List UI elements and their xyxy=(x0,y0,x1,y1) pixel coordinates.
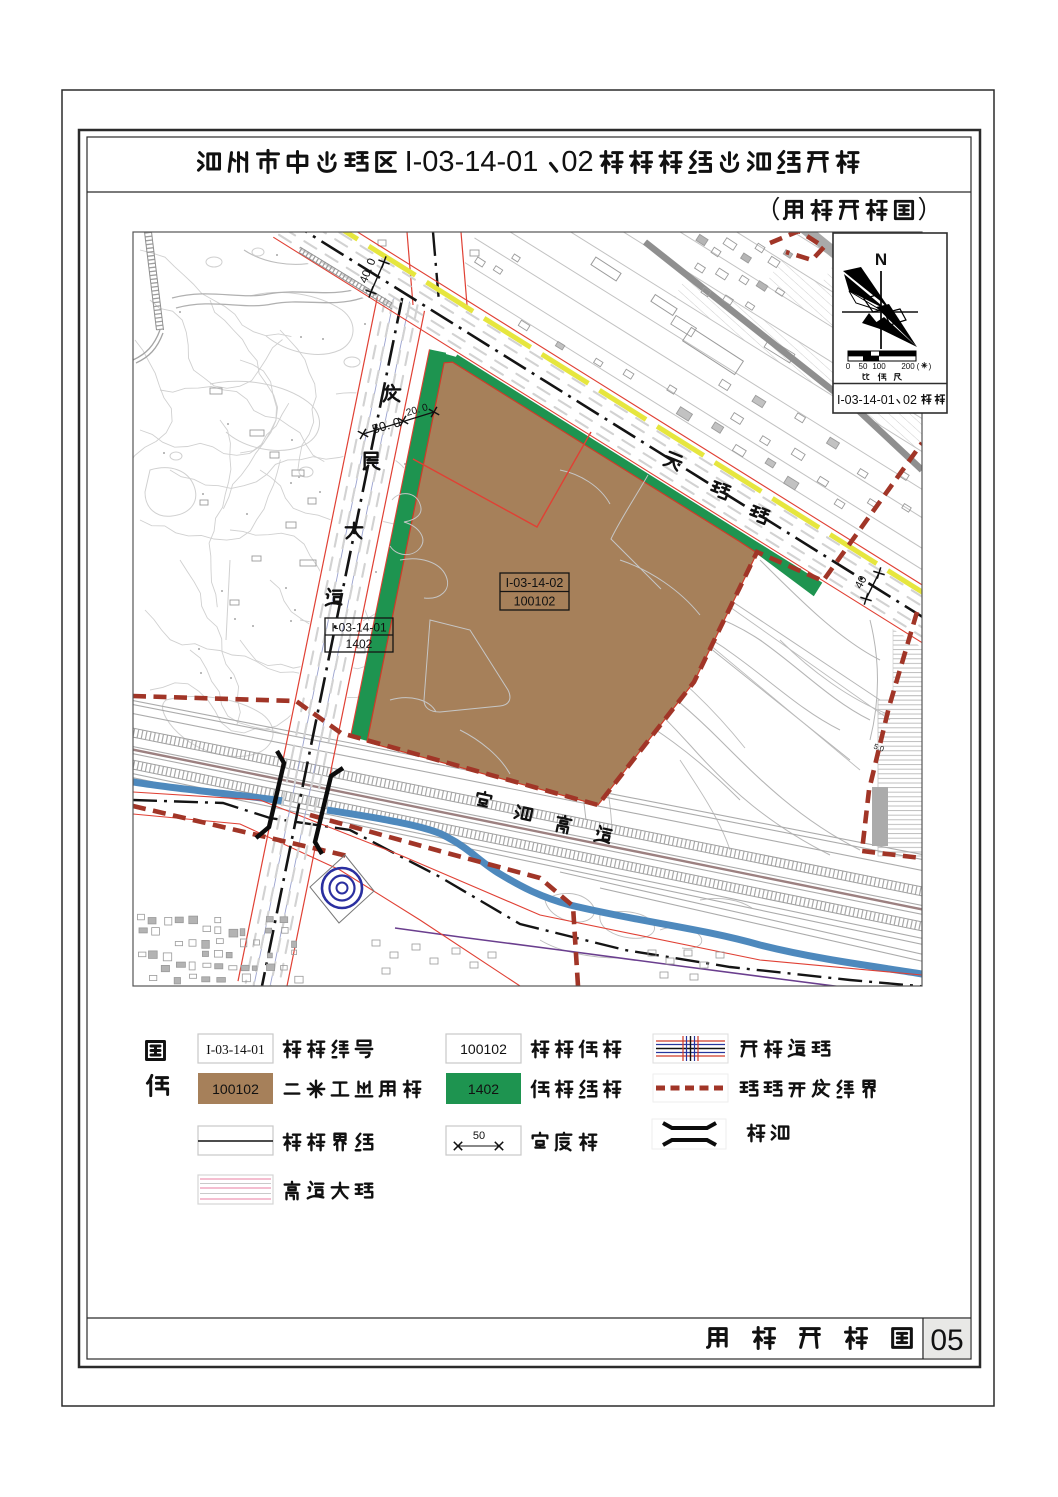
svg-text:I-03-14-01: I-03-14-01 xyxy=(331,621,387,635)
svg-text:（: （ xyxy=(755,196,780,224)
svg-text:100: 100 xyxy=(872,362,886,371)
svg-text:N: N xyxy=(875,250,887,269)
svg-text:02: 02 xyxy=(561,146,593,178)
svg-text:02: 02 xyxy=(903,393,917,407)
svg-text:I-03-14-02: I-03-14-02 xyxy=(506,576,564,590)
svg-text:50: 50 xyxy=(859,362,868,371)
svg-text:05: 05 xyxy=(930,1324,963,1357)
svg-text:I-03-14-01: I-03-14-01 xyxy=(837,393,895,407)
svg-text:I-03-14-01: I-03-14-01 xyxy=(405,146,539,178)
svg-text:100102: 100102 xyxy=(514,595,556,609)
svg-text:100102: 100102 xyxy=(212,1081,259,1097)
svg-text:1402: 1402 xyxy=(468,1081,499,1097)
svg-text:100102: 100102 xyxy=(460,1041,507,1057)
svg-text:50: 50 xyxy=(473,1130,485,1142)
svg-text:0: 0 xyxy=(846,362,851,371)
svg-text:）: ） xyxy=(917,196,942,224)
svg-text:(: ( xyxy=(917,362,920,371)
svg-text:200: 200 xyxy=(901,362,915,371)
svg-text:I-03-14-01: I-03-14-01 xyxy=(206,1042,264,1057)
svg-text:): ) xyxy=(929,362,932,371)
svg-text:1402: 1402 xyxy=(346,637,373,651)
